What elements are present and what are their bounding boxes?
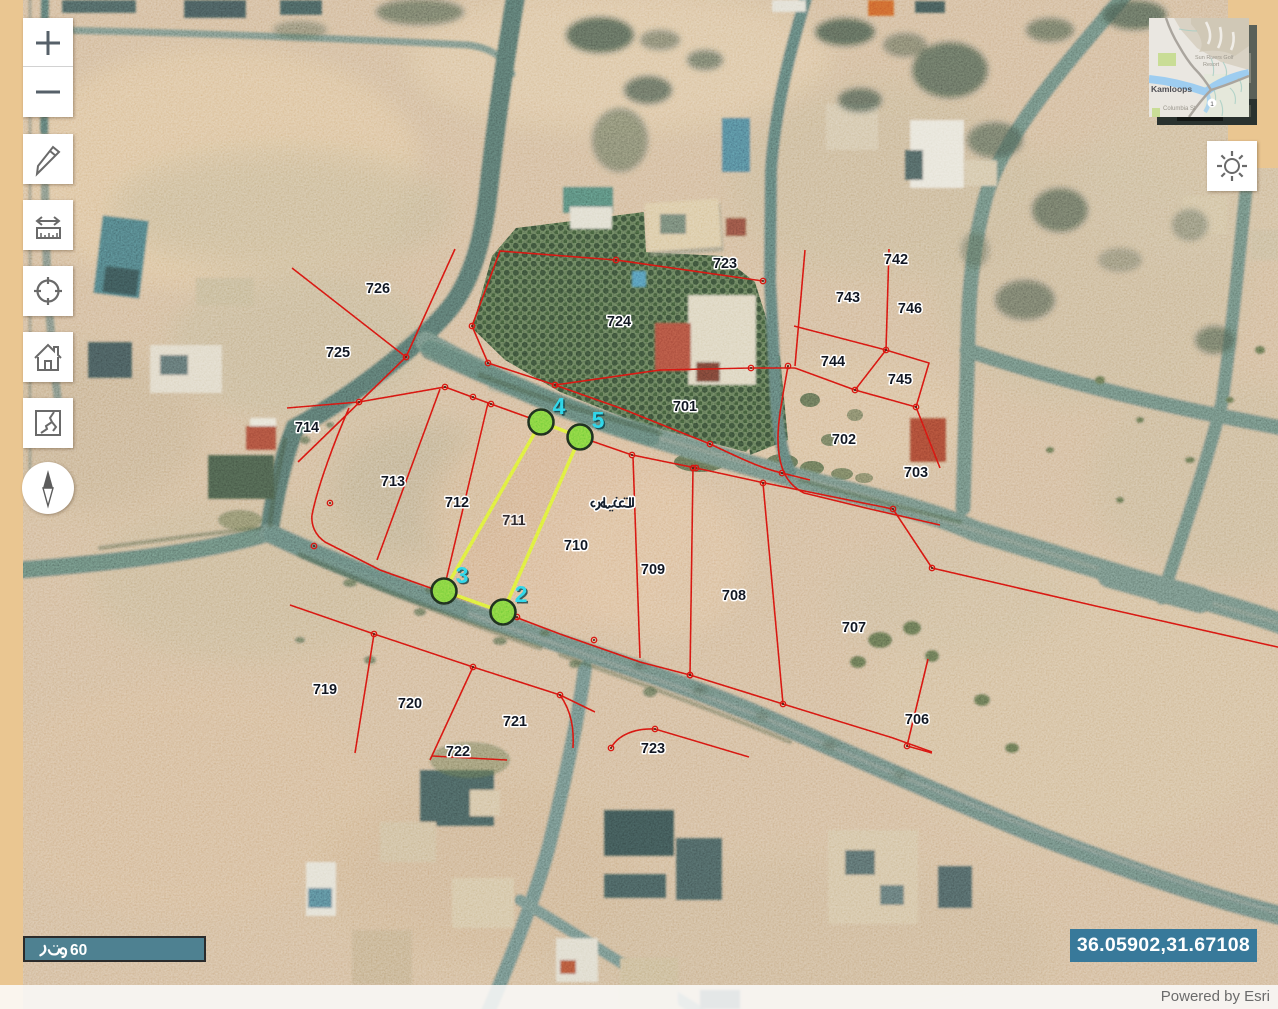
svg-text:Kamloops: Kamloops [1151,84,1192,94]
svg-text:Sun Rivers Golf: Sun Rivers Golf [1195,55,1234,61]
svg-text:60: 60 [70,942,87,959]
svg-text:Resort: Resort [1203,62,1220,68]
svg-text:1: 1 [1210,101,1214,108]
svg-text:Columbia St: Columbia St [1163,106,1196,112]
